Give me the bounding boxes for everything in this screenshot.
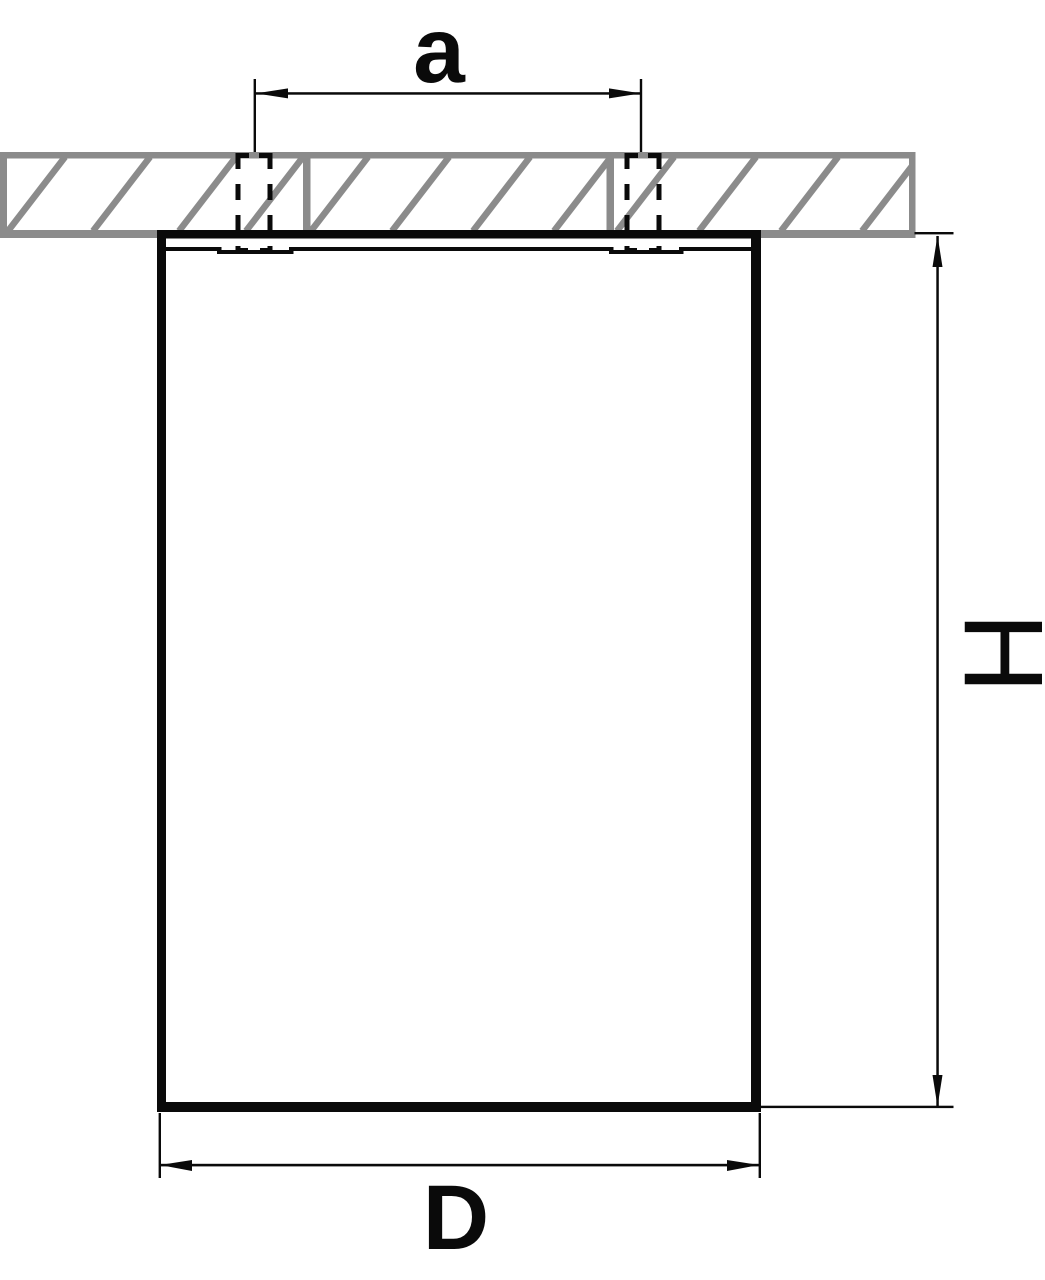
svg-text:D: D bbox=[423, 1167, 489, 1269]
svg-text:a: a bbox=[413, 0, 466, 102]
svg-text:H: H bbox=[941, 613, 1045, 694]
